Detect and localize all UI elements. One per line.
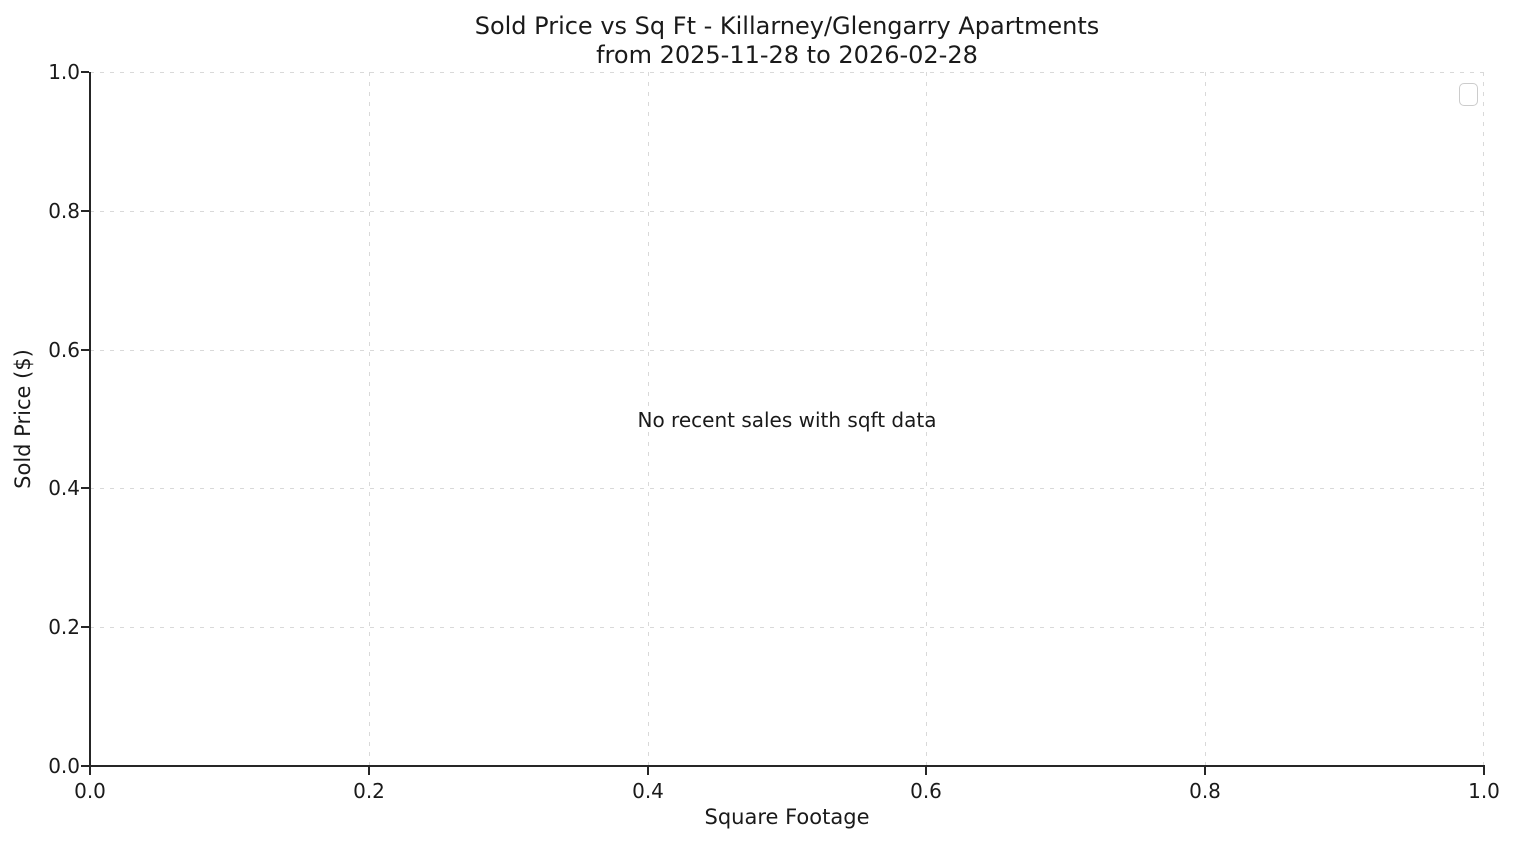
gridline-horizontal bbox=[90, 72, 1484, 73]
y-tick-mark bbox=[81, 71, 89, 73]
legend-box bbox=[1459, 83, 1478, 106]
x-tick-mark bbox=[1483, 767, 1485, 775]
x-tick-label: 0.8 bbox=[1175, 779, 1235, 803]
x-tick-mark bbox=[368, 767, 370, 775]
y-tick-mark bbox=[81, 626, 89, 628]
y-axis-label: Sold Price ($) bbox=[11, 349, 35, 489]
y-tick-label: 1.0 bbox=[0, 60, 80, 84]
chart-title-line2: from 2025-11-28 to 2026-02-28 bbox=[90, 41, 1484, 70]
gridline-horizontal bbox=[90, 488, 1484, 489]
x-tick-mark bbox=[925, 767, 927, 775]
y-axis-spine bbox=[89, 72, 91, 767]
chart-title: Sold Price vs Sq Ft - Killarney/Glengarr… bbox=[90, 12, 1484, 70]
x-tick-label: 0.0 bbox=[60, 779, 120, 803]
chart-figure: Sold Price vs Sq Ft - Killarney/Glengarr… bbox=[0, 0, 1517, 845]
x-axis-label: Square Footage bbox=[90, 805, 1484, 829]
gridline-horizontal bbox=[90, 350, 1484, 351]
no-data-annotation: No recent sales with sqft data bbox=[90, 408, 1484, 432]
y-tick-mark bbox=[81, 210, 89, 212]
y-tick-label: 0.0 bbox=[0, 754, 80, 778]
gridline-horizontal bbox=[90, 211, 1484, 212]
gridline-horizontal bbox=[90, 627, 1484, 628]
plot-area: No recent sales with sqft data bbox=[90, 72, 1484, 766]
x-tick-mark bbox=[89, 767, 91, 775]
x-tick-mark bbox=[647, 767, 649, 775]
x-tick-label: 0.4 bbox=[618, 779, 678, 803]
y-tick-label: 0.2 bbox=[0, 615, 80, 639]
x-tick-label: 1.0 bbox=[1454, 779, 1514, 803]
x-tick-label: 0.2 bbox=[339, 779, 399, 803]
y-tick-label: 0.8 bbox=[0, 199, 80, 223]
y-tick-mark bbox=[81, 765, 89, 767]
x-axis-spine bbox=[89, 765, 1485, 767]
y-tick-mark bbox=[81, 487, 89, 489]
x-tick-label: 0.6 bbox=[896, 779, 956, 803]
chart-title-line1: Sold Price vs Sq Ft - Killarney/Glengarr… bbox=[90, 12, 1484, 41]
y-tick-mark bbox=[81, 349, 89, 351]
x-tick-mark bbox=[1204, 767, 1206, 775]
